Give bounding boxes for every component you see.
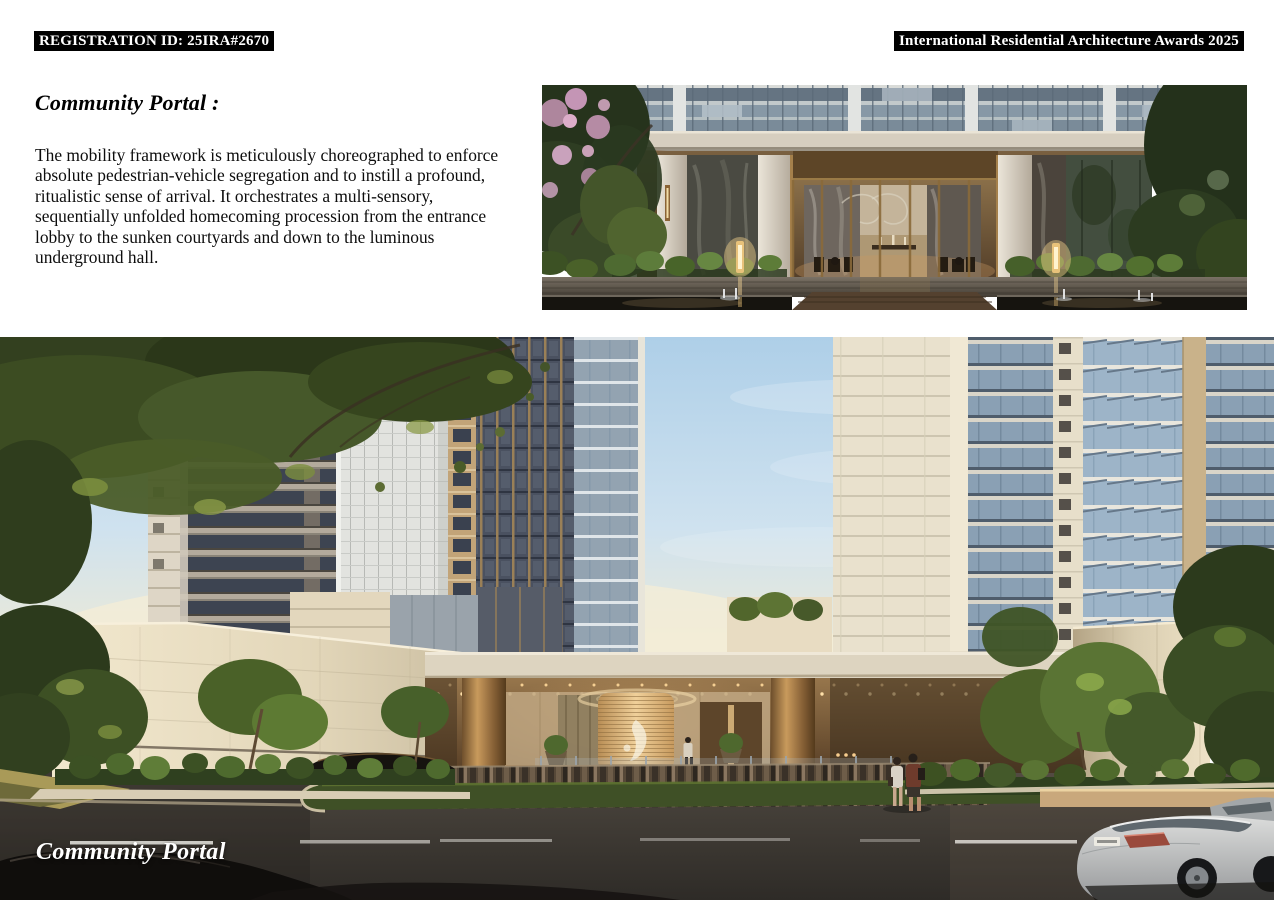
lobby-render-illustration: [542, 85, 1247, 310]
entrance-canopy: [425, 651, 1084, 680]
award-title-badge: International Residential Architecture A…: [894, 31, 1244, 51]
body-line: The mobility framework is meticulously c…: [35, 145, 515, 165]
portal-render-illustration: [0, 337, 1274, 900]
section-heading: Community Portal :: [35, 90, 515, 116]
silver-sedan: [1077, 815, 1274, 900]
body-line: lobby to the sunken courtyards and down …: [35, 227, 515, 247]
registration-id-badge: REGISTRATION ID: 25IRA#2670: [34, 31, 274, 51]
body-line: underground hall.: [35, 247, 515, 267]
image-caption: Community Portal: [36, 839, 226, 866]
entrance-lobby-render: [542, 85, 1247, 310]
section-body: The mobility framework is meticulously c…: [35, 145, 515, 267]
intro-text-block: Community Portal : The mobility framewor…: [35, 90, 515, 267]
community-portal-render: [0, 337, 1274, 900]
body-line: sequentially unfolded homecoming process…: [35, 206, 515, 226]
award-board-page: REGISTRATION ID: 25IRA#2670 Internationa…: [0, 0, 1274, 900]
body-line: ritualistic sense of arrival. It orchest…: [35, 186, 515, 206]
body-line: absolute pedestrian-vehicle segregation …: [35, 165, 515, 185]
